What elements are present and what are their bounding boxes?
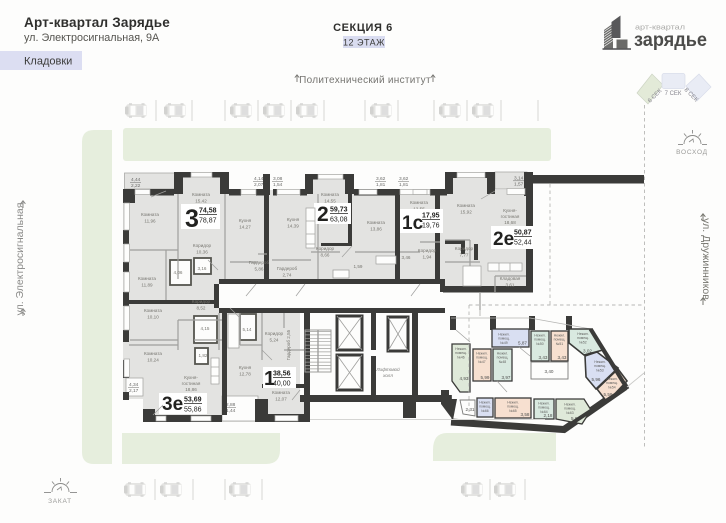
- svg-text:12,07: 12,07: [275, 396, 287, 401]
- svg-text:1с: 1с: [402, 213, 424, 234]
- svg-text:Гардероб 2,55: Гардероб 2,55: [286, 329, 291, 360]
- svg-text:3,40: 3,40: [545, 369, 554, 374]
- svg-text:1,82: 1,82: [199, 353, 208, 358]
- svg-text:гостиная: гостиная: [182, 381, 201, 386]
- svg-text:15,92: 15,92: [460, 209, 472, 214]
- svg-text:Коридор: Коридор: [316, 246, 335, 251]
- svg-text:1,81: 1,81: [376, 182, 386, 188]
- svg-text:63,08: 63,08: [330, 217, 348, 224]
- svg-text:№53: №53: [596, 368, 604, 372]
- svg-text:ул. Дружинников: ул. Дружинников: [700, 218, 712, 300]
- svg-text:12,78: 12,78: [239, 371, 251, 376]
- svg-text:Комната: Комната: [457, 203, 475, 208]
- svg-text:5,96: 5,96: [592, 377, 601, 382]
- svg-text:Кухня: Кухня: [287, 217, 300, 222]
- svg-text:ул. Электросигнальная, 9А: ул. Электросигнальная, 9А: [24, 32, 160, 44]
- svg-text:3,02: 3,02: [583, 349, 592, 354]
- svg-text:8,52: 8,52: [197, 305, 206, 310]
- svg-text:7,77: 7,77: [460, 252, 469, 257]
- svg-text:Коридор: Коридор: [192, 299, 211, 304]
- svg-text:38,56: 38,56: [273, 371, 291, 378]
- svg-text:3,46: 3,46: [402, 255, 411, 260]
- svg-text:14,27: 14,27: [239, 224, 251, 229]
- svg-text:59,73: 59,73: [330, 207, 348, 214]
- svg-text:8,66: 8,66: [321, 252, 330, 257]
- svg-text:Коридор: Коридор: [455, 246, 474, 251]
- svg-text:Кухня-: Кухня-: [503, 208, 517, 213]
- svg-text:Кухня: Кухня: [239, 365, 252, 370]
- svg-text:1,81: 1,81: [399, 182, 409, 188]
- svg-text:15,42: 15,42: [195, 198, 207, 203]
- svg-text:№51: №51: [556, 342, 564, 346]
- svg-text:Кухня-: Кухня-: [184, 375, 198, 380]
- svg-text:№48: №48: [499, 360, 507, 364]
- svg-text:Комната: Комната: [367, 220, 385, 225]
- svg-text:1,59: 1,59: [354, 264, 363, 269]
- svg-text:Коридор: Коридор: [193, 243, 212, 248]
- svg-text:№66: №66: [481, 409, 489, 413]
- svg-text:Кладовки: Кладовки: [24, 56, 72, 68]
- svg-text:2,31: 2,31: [466, 407, 475, 412]
- svg-text:3,43: 3,43: [558, 355, 567, 360]
- svg-text:3: 3: [185, 205, 199, 233]
- svg-text:Комната: Комната: [272, 390, 290, 395]
- svg-text:Комната: Комната: [141, 212, 159, 217]
- svg-text:3е: 3е: [162, 394, 183, 415]
- svg-text:Гардероб: Гардероб: [249, 260, 270, 265]
- svg-text:18,68: 18,68: [504, 220, 516, 225]
- svg-text:зарядье: зарядье: [634, 30, 707, 51]
- svg-text:2,17: 2,17: [129, 388, 139, 394]
- svg-text:3,58: 3,58: [521, 412, 530, 417]
- svg-text:СЕКЦИЯ 6: СЕКЦИЯ 6: [333, 22, 393, 34]
- svg-text:Комната: Комната: [410, 200, 428, 205]
- svg-text:№50: №50: [536, 342, 544, 346]
- svg-text:74,58: 74,58: [199, 208, 217, 215]
- svg-text:1,54: 1,54: [273, 182, 283, 188]
- svg-text:№63: №63: [566, 411, 574, 415]
- svg-text:ВОСХОД: ВОСХОД: [676, 149, 708, 156]
- svg-text:5,86: 5,86: [255, 266, 264, 271]
- svg-text:53,69: 53,69: [184, 397, 202, 404]
- svg-text:14,39: 14,39: [287, 223, 299, 228]
- svg-text:3,16: 3,16: [198, 266, 207, 271]
- svg-text:3,97: 3,97: [502, 375, 511, 380]
- svg-text:11,96: 11,96: [144, 218, 156, 223]
- svg-text:2: 2: [317, 203, 329, 226]
- svg-text:12 ЭТАЖ: 12 ЭТАЖ: [343, 38, 385, 48]
- svg-text:Политехнический институт: Политехнический институт: [299, 75, 431, 86]
- svg-text:№47: №47: [478, 360, 486, 364]
- svg-text:ЗАКАТ: ЗАКАТ: [48, 498, 72, 505]
- svg-text:18,86: 18,86: [185, 387, 197, 392]
- svg-text:5,24: 5,24: [270, 337, 279, 342]
- svg-text:Гардероб: Гардероб: [277, 266, 298, 271]
- svg-text:№49: №49: [500, 341, 508, 345]
- svg-text:55,86: 55,86: [184, 407, 202, 414]
- svg-text:19,76: 19,76: [422, 223, 440, 230]
- svg-text:2,18: 2,18: [544, 413, 553, 418]
- svg-text:78,87: 78,87: [199, 218, 217, 225]
- svg-text:гостиная: гостиная: [501, 214, 520, 219]
- svg-text:Комната: Комната: [144, 351, 162, 356]
- svg-text:2,22: 2,22: [131, 183, 141, 189]
- svg-text:4,15: 4,15: [201, 326, 210, 331]
- svg-text:1,57: 1,57: [514, 182, 524, 188]
- svg-text:1,94: 1,94: [423, 254, 432, 259]
- svg-text:Комната: Комната: [138, 276, 156, 281]
- svg-text:13,86: 13,86: [370, 226, 382, 231]
- svg-text:11,89: 11,89: [141, 282, 153, 287]
- svg-text:Лифтовой: Лифтовой: [375, 366, 400, 372]
- svg-text:Кухня: Кухня: [239, 218, 252, 223]
- svg-text:2,74: 2,74: [283, 272, 292, 277]
- svg-text:холл: холл: [382, 373, 393, 378]
- svg-text:Комната: Комната: [321, 192, 339, 197]
- svg-text:3,43: 3,43: [539, 355, 548, 360]
- svg-text:2,07: 2,07: [254, 182, 264, 188]
- svg-text:10,10: 10,10: [147, 314, 159, 319]
- svg-text:4,93: 4,93: [460, 376, 469, 381]
- svg-text:№52: №52: [579, 340, 587, 344]
- svg-text:4,06: 4,06: [174, 270, 183, 275]
- svg-text:5,14: 5,14: [243, 327, 252, 332]
- svg-text:7 СЕК: 7 СЕК: [665, 91, 682, 97]
- svg-text:10,24: 10,24: [147, 357, 159, 362]
- svg-text:Коридор: Коридор: [418, 248, 437, 253]
- svg-text:Комната: Комната: [144, 308, 162, 313]
- svg-text:5,99: 5,99: [481, 375, 490, 380]
- svg-text:2е: 2е: [493, 229, 514, 250]
- svg-text:3,61: 3,61: [506, 282, 515, 287]
- svg-text:Коридор: Коридор: [265, 331, 284, 336]
- svg-text:№65: №65: [509, 409, 517, 413]
- svg-text:10,36: 10,36: [196, 249, 208, 254]
- svg-text:ул. Электросигнальная: ул. Электросигнальная: [14, 203, 26, 316]
- svg-text:17,95: 17,95: [422, 213, 440, 220]
- svg-text:5,87: 5,87: [518, 341, 527, 346]
- svg-text:40,00: 40,00: [273, 381, 291, 388]
- svg-text:52,44: 52,44: [514, 240, 532, 247]
- svg-text:1,44: 1,44: [226, 408, 236, 414]
- svg-text:Кладовая: Кладовая: [500, 276, 521, 281]
- svg-text:№54: №54: [608, 385, 616, 389]
- svg-text:Арт-квартал Зарядье: Арт-квартал Зарядье: [24, 15, 170, 30]
- svg-text:№46: №46: [457, 355, 465, 359]
- svg-text:50,87: 50,87: [514, 230, 532, 237]
- svg-text:Комната: Комната: [192, 192, 210, 197]
